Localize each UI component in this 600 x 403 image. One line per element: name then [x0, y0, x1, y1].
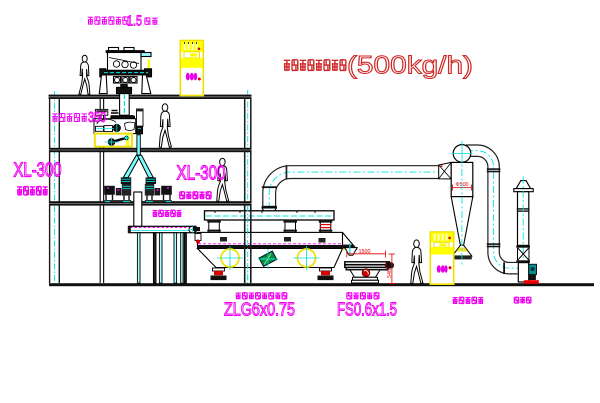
svg-text:540: 540	[387, 269, 393, 278]
svg-text:FS0.6x1.5: FS0.6x1.5	[337, 299, 397, 320]
svg-text:(500kg/h): (500kg/h)	[347, 52, 473, 80]
svg-text:XL-300: XL-300	[14, 160, 62, 182]
svg-text:ZLG6x0.75: ZLG6x0.75	[224, 299, 295, 320]
svg-text:350: 350	[88, 110, 106, 126]
svg-text:1.5: 1.5	[127, 13, 142, 30]
svg-text:1500: 1500	[359, 249, 371, 255]
svg-text:XL-300: XL-300	[177, 163, 226, 185]
